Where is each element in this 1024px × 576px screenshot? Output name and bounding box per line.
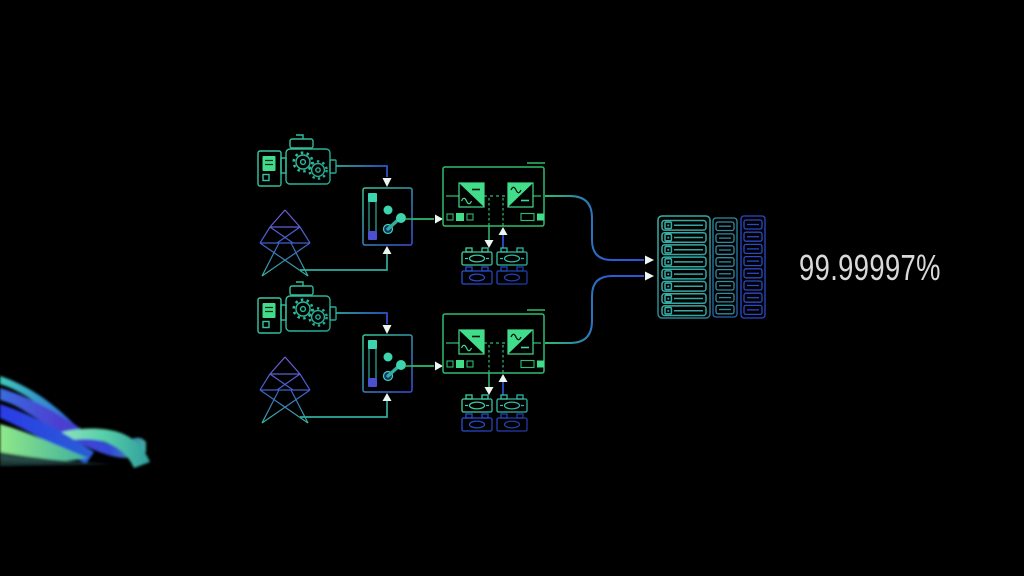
power-path-b	[258, 282, 545, 431]
power-diagram	[0, 0, 1024, 576]
ups-b-output-wire	[545, 272, 654, 344]
slide-canvas: 99.99997%	[0, 0, 1024, 576]
power-path-a	[258, 135, 545, 284]
server-rack-icon	[658, 216, 765, 318]
availability-text: 99.99997%	[799, 249, 941, 287]
gradient-wave	[0, 376, 150, 468]
ups-a-output-wire	[545, 196, 654, 265]
